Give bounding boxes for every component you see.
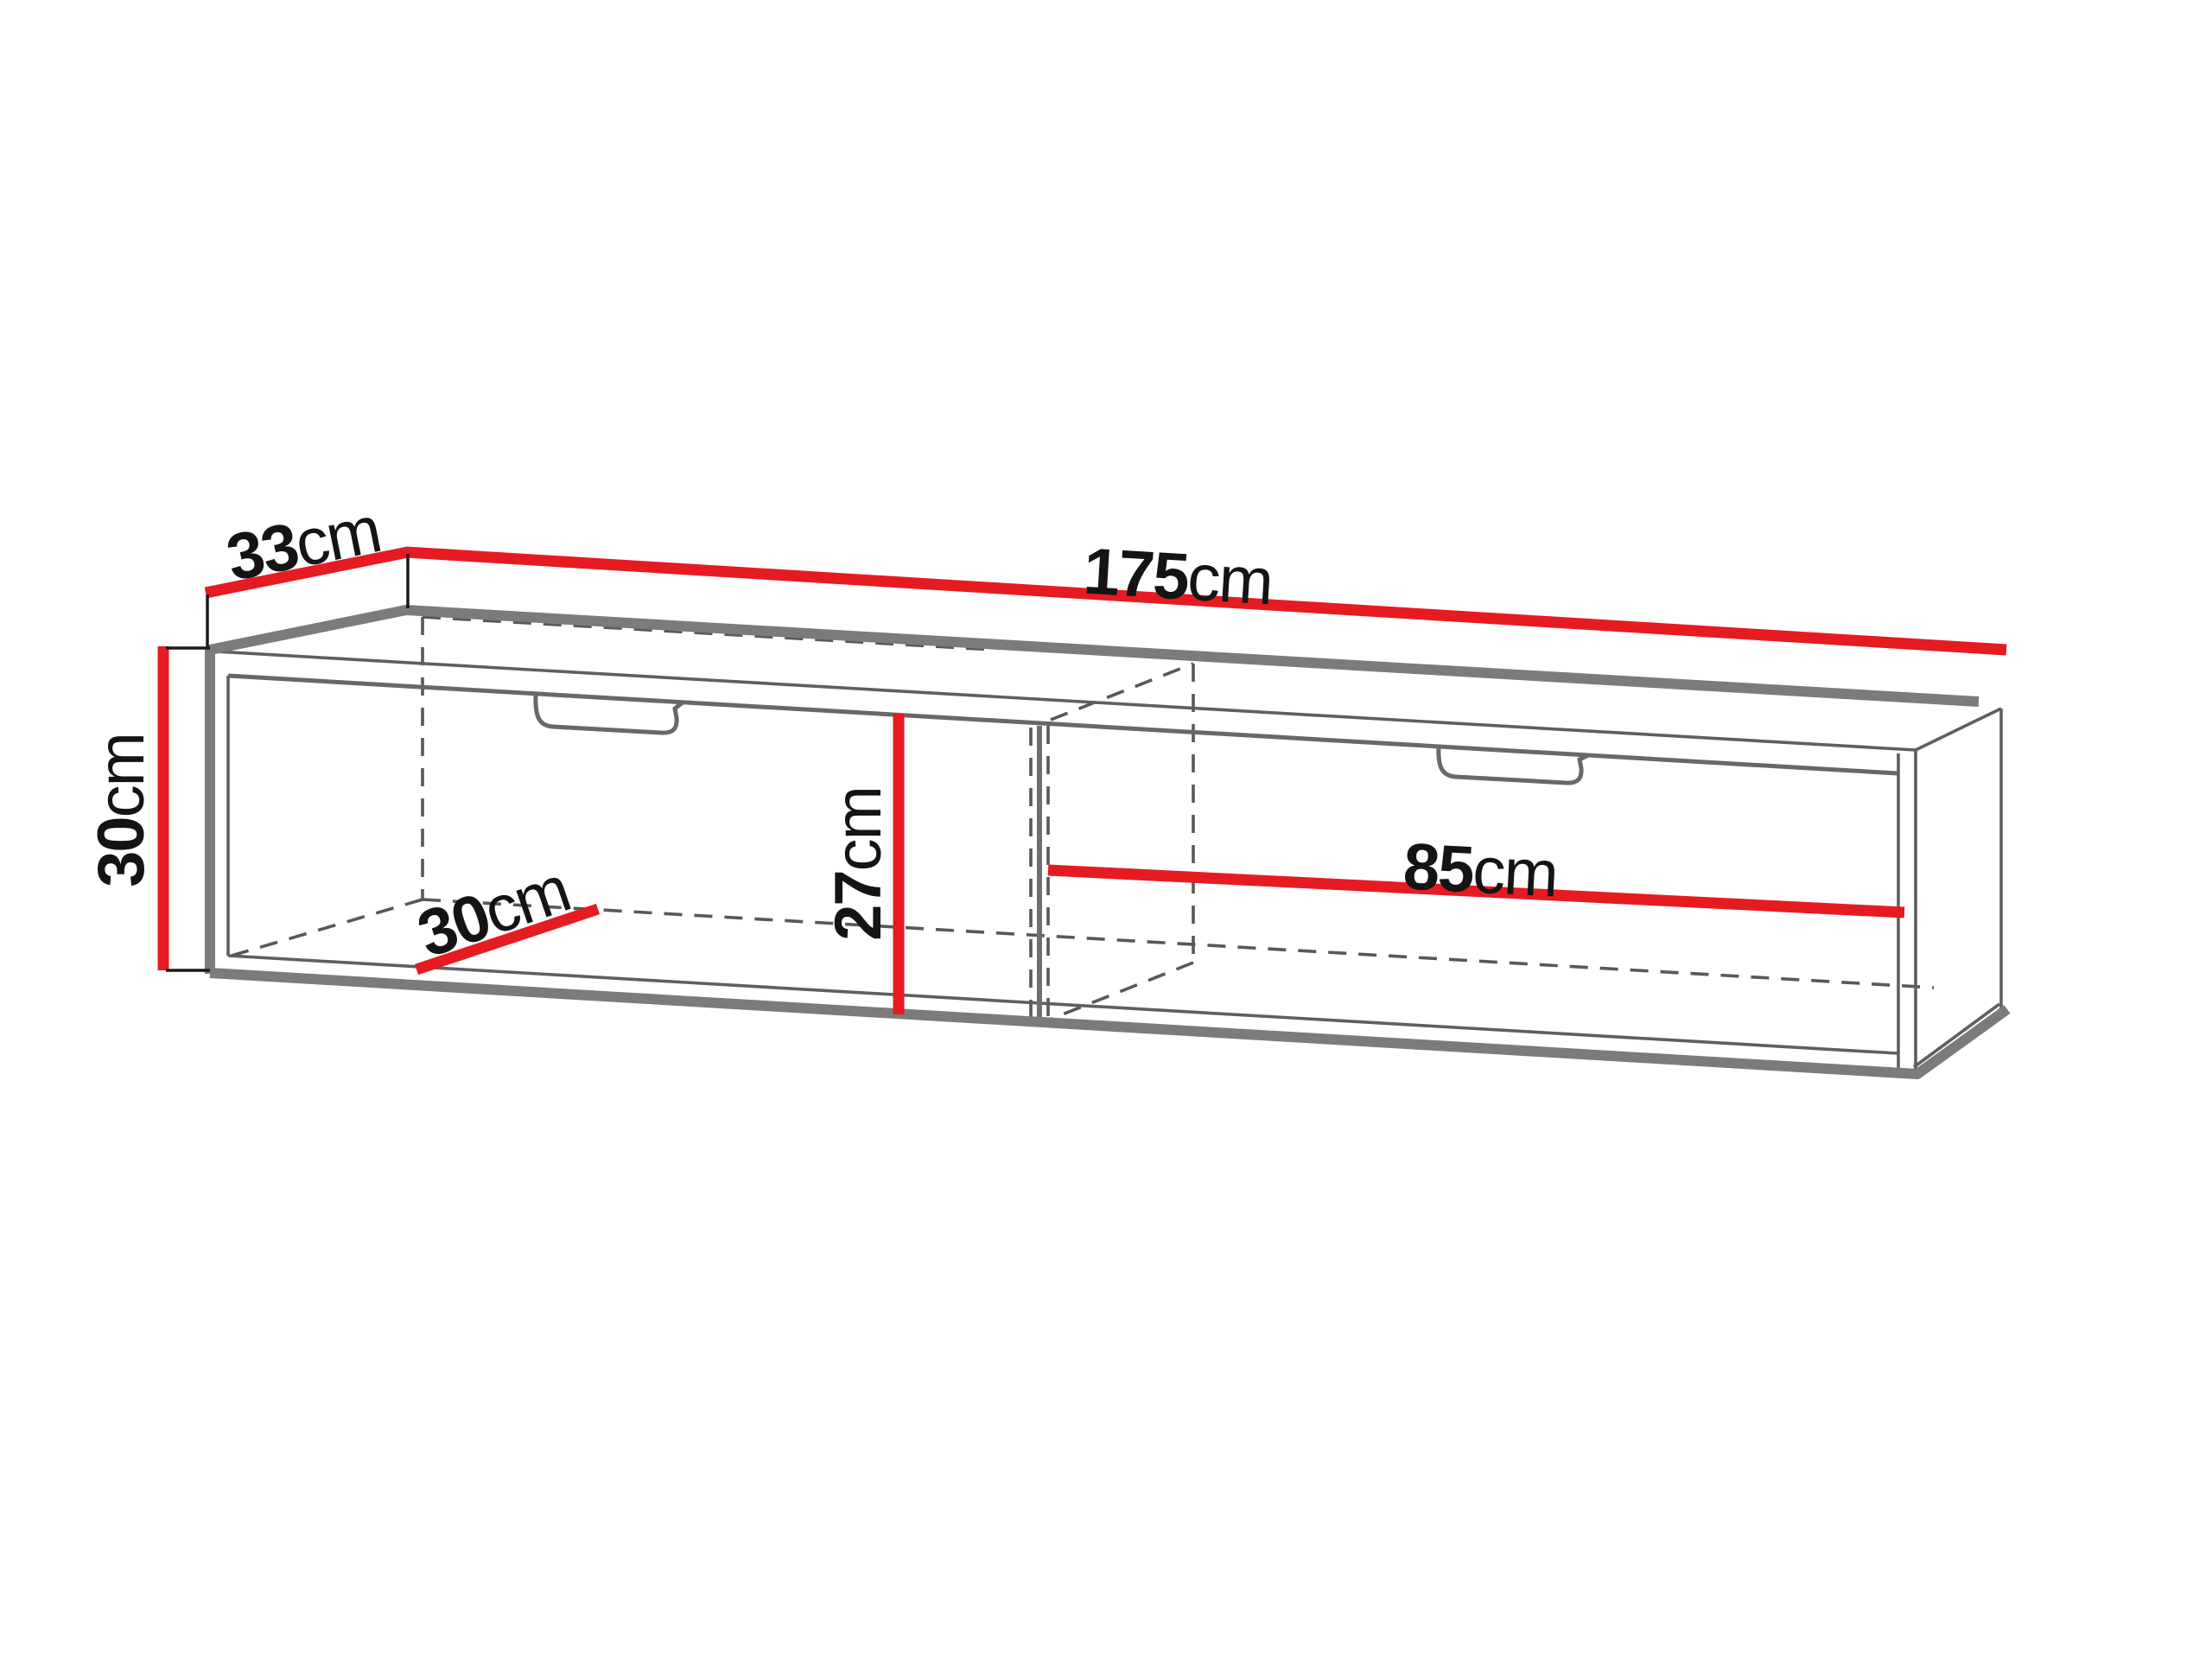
furniture-dimension-diagram: 33cm 175cm 30cm 30cm 27cm 85cm — [0, 0, 2212, 1659]
diagram-canvas: 33cm 175cm 30cm 30cm 27cm 85cm — [0, 0, 2212, 1659]
hidden-floor-left-depth-edge — [232, 899, 423, 956]
hidden-divider-bottom-depth-edge — [1043, 963, 1193, 1022]
dimension-labels-group: 33cm 175cm 30cm 30cm 27cm 85cm — [85, 493, 1560, 972]
outline-bottom — [210, 973, 2007, 1074]
drawer-fronts-group — [228, 676, 1897, 1053]
drawer-top-edge — [228, 676, 1897, 773]
dimension-label-inner-width-right: 85cm — [1402, 829, 1559, 911]
right-bottom-depth-edge — [1914, 1004, 1999, 1067]
dimension-label-inner-height: 27cm — [822, 787, 895, 941]
hidden-edges-group — [232, 617, 1934, 1025]
dimension-label-height: 30cm — [85, 734, 158, 887]
hidden-divider-top-depth-edge — [1051, 664, 1193, 720]
dimension-label-depth: 33cm — [220, 493, 385, 595]
top-front-edge — [216, 652, 1916, 750]
dimension-label-inner-depth: 30cm — [409, 852, 578, 971]
right-top-depth-edge — [1916, 709, 2001, 750]
dimension-label-width: 175cm — [1082, 534, 1274, 619]
carcass-thin-edges-group — [216, 652, 2001, 1072]
hidden-back-bottom-edge — [423, 899, 1934, 988]
hidden-back-top-edge — [423, 617, 994, 650]
silhouette-thick-group — [210, 610, 2007, 1074]
